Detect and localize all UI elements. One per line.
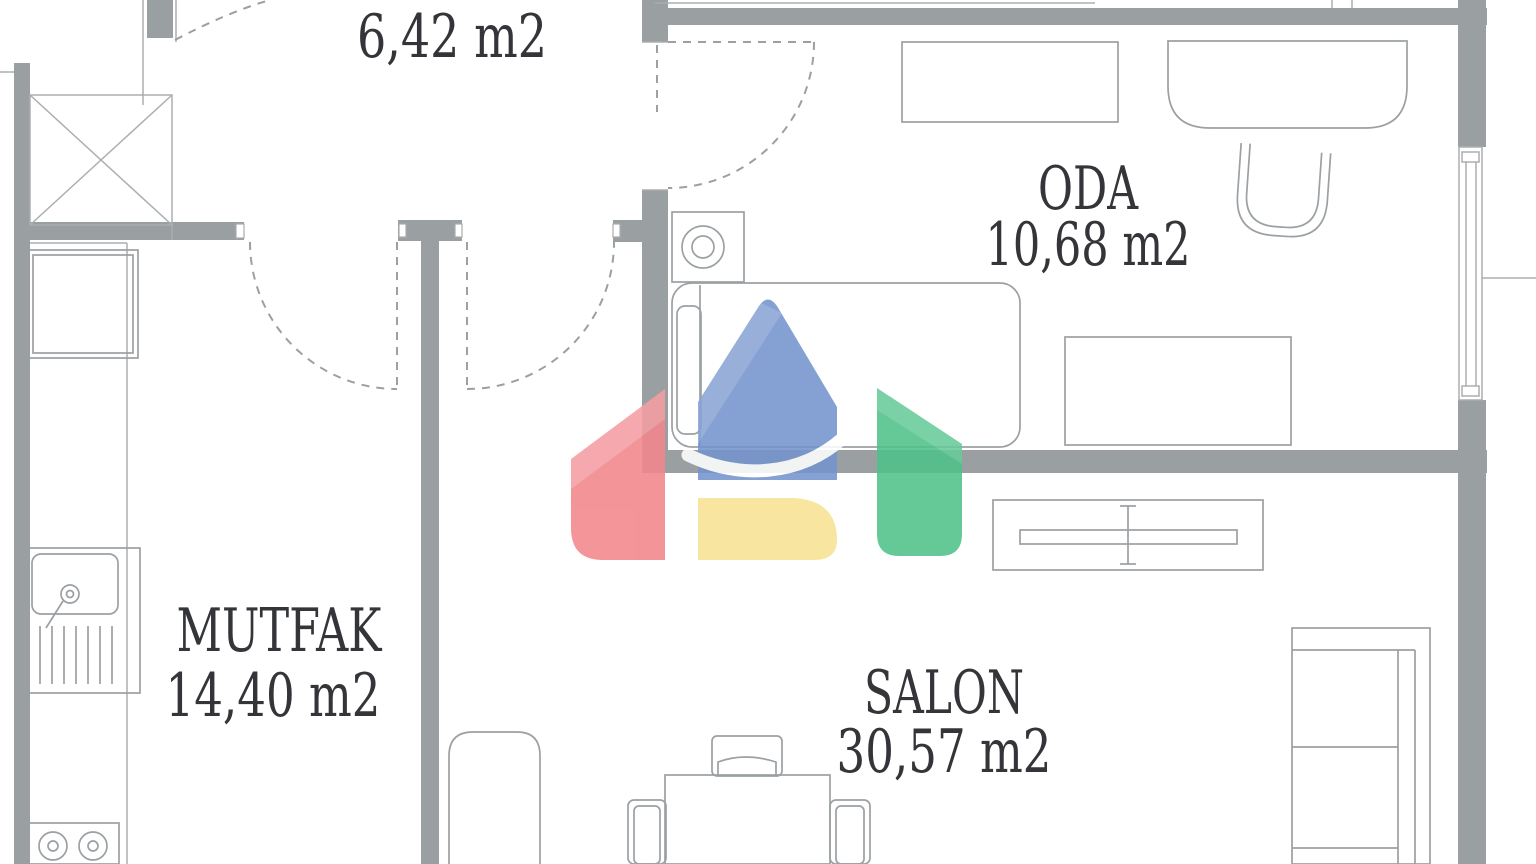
door-jamb <box>455 224 462 237</box>
dining-chair <box>712 736 782 776</box>
door-swing <box>467 242 614 389</box>
door-swing <box>668 42 814 188</box>
radiator <box>993 500 1263 570</box>
door-jamb <box>399 224 406 237</box>
sofa-outline <box>1292 628 1430 864</box>
sink-basin <box>32 554 118 614</box>
room-mutfak-area: 14,40 m2 <box>166 661 381 731</box>
stove-outline <box>27 823 119 864</box>
burner-center <box>88 841 98 851</box>
faucet <box>61 585 79 603</box>
kitchen-sink <box>25 548 140 693</box>
room-oda-area: 10,68 m2 <box>986 210 1191 280</box>
shaft <box>30 95 172 240</box>
wall-segment <box>642 8 1487 25</box>
window-cap <box>1462 152 1479 162</box>
dining-table <box>665 775 830 864</box>
wall-segment <box>14 63 30 864</box>
desk <box>1168 41 1407 128</box>
room-mutfak-name: MUTFAK <box>177 596 383 666</box>
window-cap <box>1462 386 1479 396</box>
logo-yellow-shape <box>698 498 837 560</box>
entrance-door-swing <box>175 0 270 40</box>
watermark-house-logo <box>571 300 962 561</box>
sink-unit <box>25 548 140 693</box>
door-swing <box>250 242 397 389</box>
dining-chair-inner <box>634 806 660 864</box>
door-jamb <box>613 224 620 237</box>
wall-segment <box>398 220 462 241</box>
window-frame <box>1459 147 1482 400</box>
wall-segment <box>421 240 439 864</box>
room-hall-area: 6,42 m2 <box>357 2 547 72</box>
room-salon-area: 30,57 m2 <box>837 717 1052 787</box>
dresser <box>1065 337 1291 445</box>
dining-chair-inner <box>836 806 864 864</box>
wall-segment <box>147 0 173 38</box>
fridge <box>28 250 138 358</box>
lamp-center <box>692 236 714 258</box>
dining-chair-seat <box>718 757 776 775</box>
window <box>1459 147 1482 400</box>
armchair <box>449 732 540 864</box>
floor-plan-canvas: 6,42 m2 ODA 10,68 m2 MUTFAK 14,40 m2 SAL… <box>0 0 1536 864</box>
fridge-outline <box>28 250 138 358</box>
dining-set <box>628 736 870 864</box>
pillow <box>677 306 701 434</box>
wardrobe <box>902 42 1118 122</box>
wall-segment <box>1458 0 1486 147</box>
fridge-inner <box>33 255 133 353</box>
burner-center <box>48 841 58 851</box>
faucet-center <box>67 591 74 598</box>
nightstand <box>672 212 744 282</box>
sink-drainer <box>40 626 112 684</box>
burner <box>39 832 67 860</box>
floor-plan-drawing: 6,42 m2 ODA 10,68 m2 MUTFAK 14,40 m2 SAL… <box>0 0 1536 864</box>
burner <box>79 832 107 860</box>
sofa <box>1292 628 1430 864</box>
lamp <box>682 226 724 268</box>
desk-chair <box>1235 143 1331 239</box>
stove <box>27 823 119 864</box>
door-jamb <box>236 224 244 238</box>
room-labels: 6,42 m2 ODA 10,68 m2 MUTFAK 14,40 m2 SAL… <box>166 2 1191 787</box>
